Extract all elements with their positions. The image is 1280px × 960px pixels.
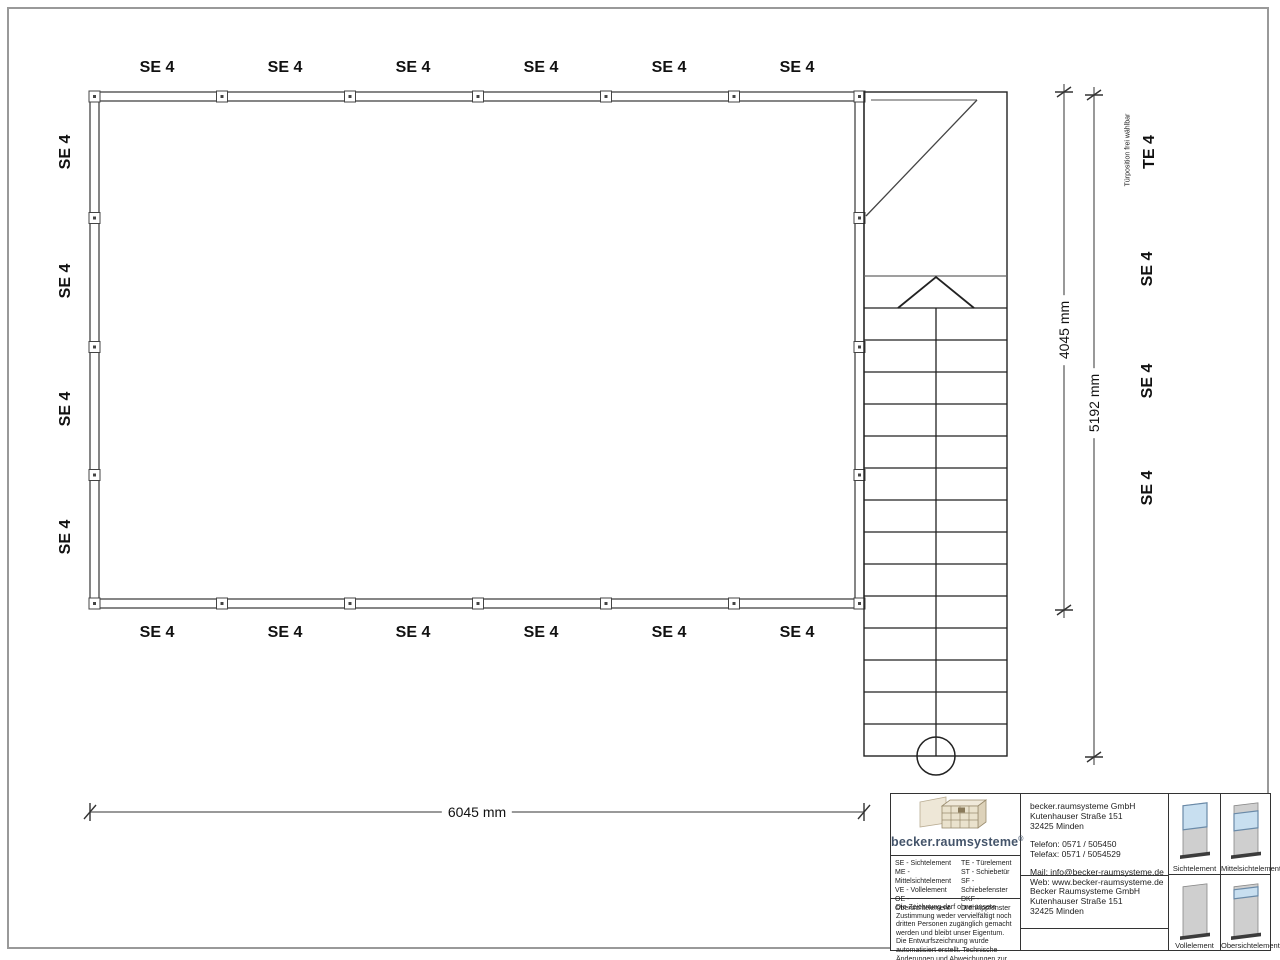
wall-label-top-3: SE 4: [396, 59, 431, 77]
title-block: becker.raumsysteme® SE - Sichtelement ME…: [890, 793, 1271, 951]
legend-te: TE - Türelement: [961, 859, 1015, 868]
width-dimension-value: 6045 mm: [442, 804, 512, 820]
wall-label-left-4: SE 4: [57, 520, 75, 555]
wall-label-bottom-1: SE 4: [140, 624, 175, 642]
wall-label-bottom-2: SE 4: [268, 624, 303, 642]
contact-company: becker.raumsysteme GmbH: [1030, 801, 1168, 811]
total-height-dimension-value: 5192 mm: [1086, 368, 1102, 438]
legend-me: ME - Mittelsichtelement: [895, 868, 961, 886]
disclaimer-cell: Die Zeichnung darf ohne unsere Zustimmun…: [891, 899, 1021, 951]
empty-cell: [1021, 929, 1169, 951]
wall-label-top-4: SE 4: [524, 59, 559, 77]
wall-label-top-5: SE 4: [652, 59, 687, 77]
contact-phone: Telefon: 0571 / 505450: [1030, 839, 1168, 849]
legend-ve: VE - Vollelement: [895, 886, 961, 895]
contact-street: Kutenhauser Straße 151: [1030, 811, 1168, 821]
wall-label-top-2: SE 4: [268, 59, 303, 77]
wall-label-left-2: SE 4: [57, 264, 75, 299]
contact-city: 32425 Minden: [1030, 821, 1168, 831]
wall-label-bottom-6: SE 4: [780, 624, 815, 642]
disclaimer-text: Die Zeichnung darf ohne unsere Zustimmun…: [896, 904, 1015, 960]
element-caption: Vollelement: [1169, 941, 1220, 950]
room-walls: [90, 92, 864, 608]
wall-connectors: [89, 91, 865, 609]
obersichtelement-thumbnail: Obersichtelement: [1221, 875, 1270, 951]
legend-st: ST - Schiebetür: [961, 868, 1015, 877]
door-position-note: Türposition frei wählbar: [1125, 114, 1132, 187]
wall-label-bottom-4: SE 4: [524, 624, 559, 642]
drawing-page: SE 4 SE 4 SE 4 SE 4 SE 4 SE 4 SE 4 SE 4 …: [0, 0, 1280, 960]
legend-sf: SF - Schiebefenster: [961, 877, 1015, 895]
element-caption: Mittelsichtelement: [1221, 864, 1270, 873]
sichtelement-panel-icon: [1173, 797, 1217, 861]
logo-wordmark: becker.raumsysteme®: [891, 835, 1020, 849]
obersichtelement-panel-icon: [1224, 878, 1268, 942]
stair-direction-chevron: [898, 277, 974, 308]
wall-label-right-2: SE 4: [1139, 252, 1157, 287]
wall-label-top-6: SE 4: [780, 59, 815, 77]
wall-label-right-1: TE 4: [1141, 135, 1159, 169]
stair-treads: [864, 308, 1007, 756]
wall-label-right-3: SE 4: [1139, 364, 1157, 399]
legend-cell: SE - Sichtelement ME - Mittelsichtelemen…: [891, 856, 1021, 899]
contact-cell: becker.raumsysteme GmbH Kutenhauser Stra…: [1021, 794, 1169, 876]
wall-label-bottom-5: SE 4: [652, 624, 687, 642]
wall-label-bottom-3: SE 4: [396, 624, 431, 642]
sichtelement-thumbnail: Sichtelement: [1169, 794, 1221, 875]
door-swing-line: [866, 100, 977, 216]
owner-city: 32425 Minden: [1030, 906, 1168, 916]
dimension-lines: [84, 84, 1103, 821]
legend-se: SE - Sichtelement: [895, 859, 961, 868]
contact-fax: Telefax: 0571 / 5054529: [1030, 849, 1168, 859]
logo-cell: becker.raumsysteme®: [891, 794, 1021, 856]
vollelement-thumbnail: Vollelement: [1169, 875, 1221, 951]
owner-company: Becker Raumsysteme GmbH: [1030, 886, 1168, 896]
mittelsichtelement-thumbnail: Mittelsichtelement: [1221, 794, 1270, 875]
vollelement-panel-icon: [1173, 878, 1217, 942]
wall-label-left-3: SE 4: [57, 392, 75, 427]
wall-label-top-1: SE 4: [140, 59, 175, 77]
becker-logo-icon: [914, 794, 998, 832]
staircase: [864, 92, 1007, 775]
room-height-dimension-value: 4045 mm: [1056, 295, 1072, 365]
wall-label-right-4: SE 4: [1139, 471, 1157, 506]
owner-street: Kutenhauser Straße 151: [1030, 896, 1168, 906]
wall-label-left-1: SE 4: [57, 135, 75, 170]
element-caption: Sichtelement: [1169, 864, 1220, 873]
owner-cell: Becker Raumsysteme GmbH Kutenhauser Stra…: [1021, 876, 1169, 929]
mittelsichtelement-panel-icon: [1224, 797, 1268, 861]
element-caption: Obersichtelement: [1221, 941, 1270, 950]
